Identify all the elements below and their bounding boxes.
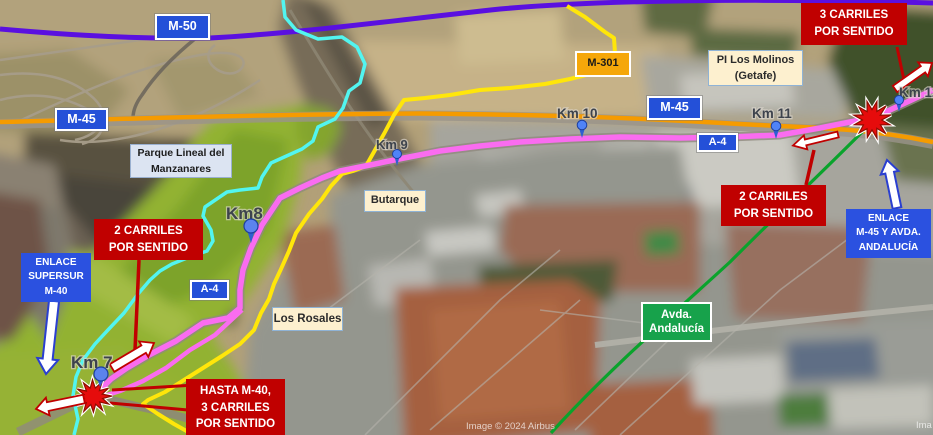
- svg-text:Image © 2024 Airbus: Image © 2024 Airbus: [466, 421, 555, 432]
- svg-text:Ima: Ima: [916, 420, 933, 431]
- svg-text:Km 10: Km 10: [557, 106, 598, 121]
- svg-text:Km8: Km8: [226, 204, 263, 223]
- svg-text:Km 12: Km 12: [899, 85, 933, 100]
- svg-text:Km 11: Km 11: [752, 106, 792, 121]
- svg-text:Km 9: Km 9: [376, 137, 408, 152]
